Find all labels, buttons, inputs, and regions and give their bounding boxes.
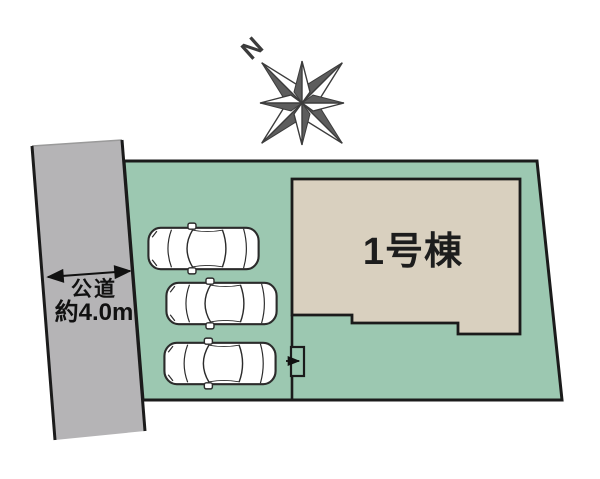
site-plan-canvas: N 公道 約4.0m 1号棟 [0, 0, 600, 479]
road-label-name: 公道 [34, 279, 154, 301]
car-icon [148, 223, 258, 274]
site-plan-drawing [0, 0, 600, 479]
road-label-width: 約4.0m [34, 301, 154, 326]
car-icon [164, 338, 275, 389]
building-label: 1号棟 [330, 229, 496, 275]
road-label: 公道 約4.0m [34, 279, 154, 326]
car-icon [166, 278, 276, 329]
